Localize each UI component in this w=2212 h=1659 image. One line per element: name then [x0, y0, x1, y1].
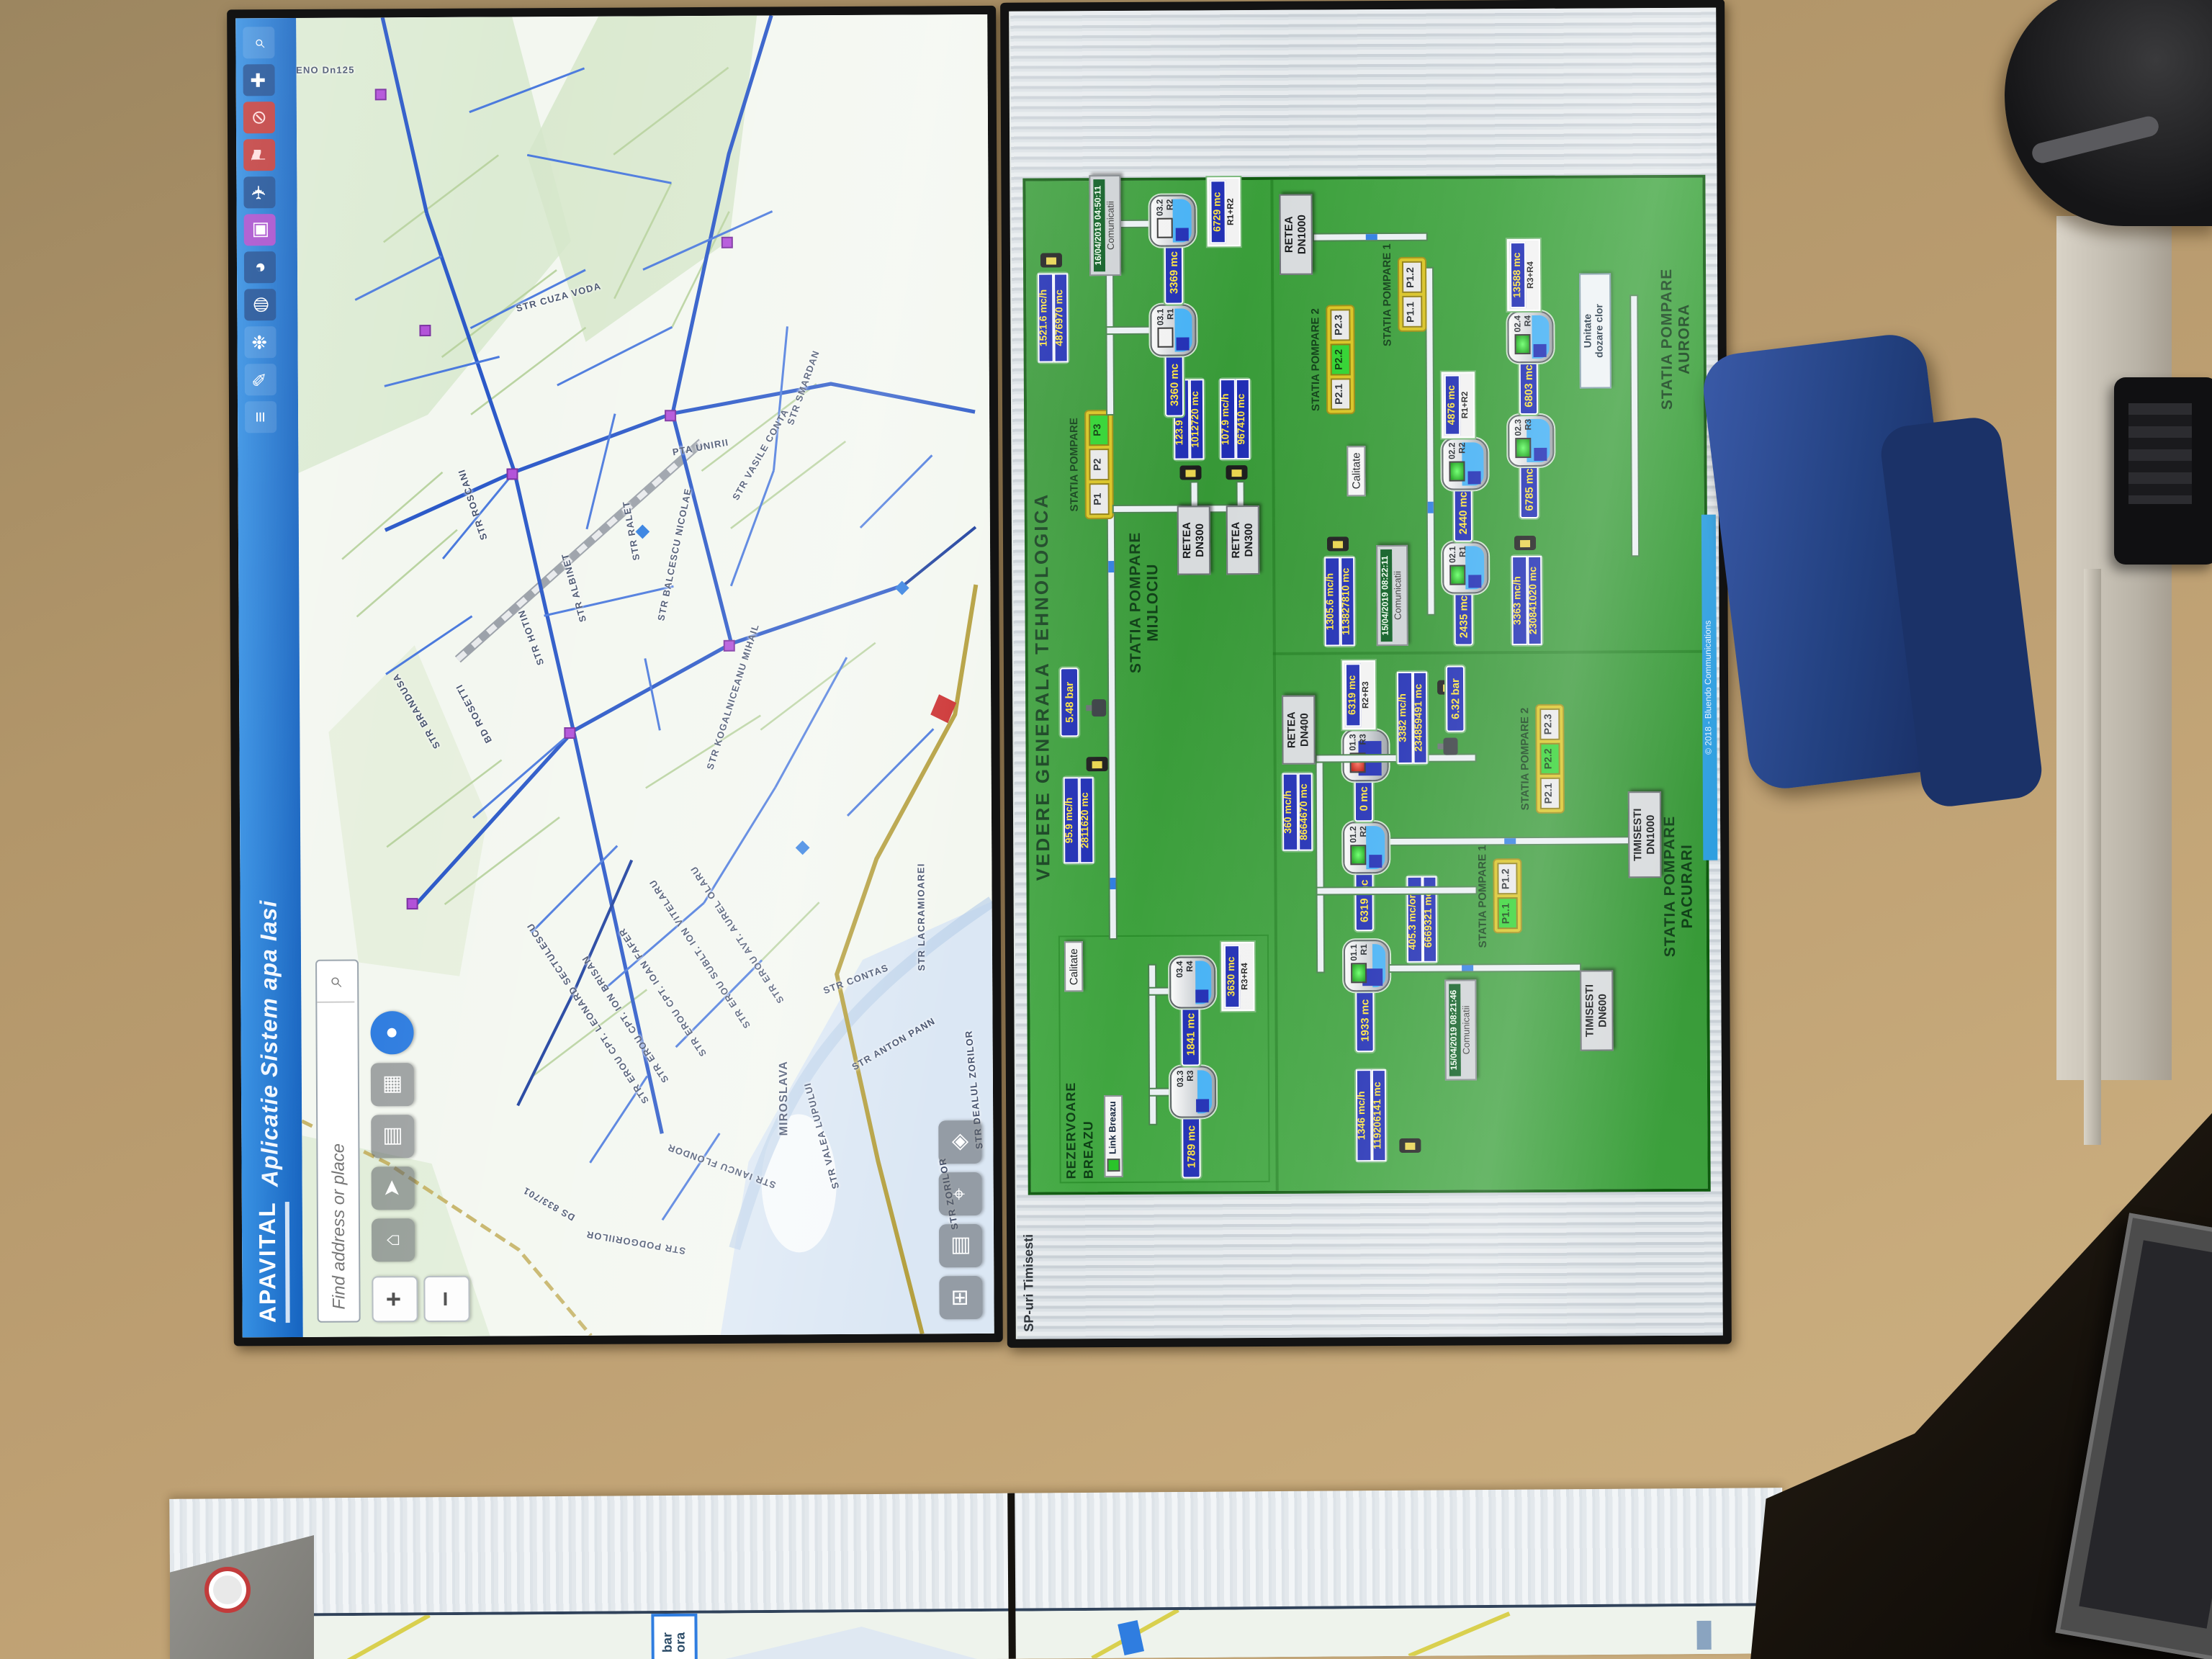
flowmeter-mijlociu-out: 1521.6 mc/h 4876970 mc — [1037, 273, 1068, 362]
no-entry-icon[interactable]: ⊘ — [243, 102, 275, 133]
palette-icon[interactable]: ❉ — [244, 326, 276, 358]
desk-monitor-seam — [1007, 1493, 1016, 1659]
pump-p1-2[interactable]: P1.2 — [1496, 863, 1516, 895]
retea-dn300-1: RETEA DN300 — [1177, 505, 1210, 575]
aurora-sp1-pumps: STATIA POMPARE 1 P1.1 P1.2 — [1380, 243, 1425, 346]
tank-03-4[interactable]: 03.4R4 — [1169, 956, 1215, 1008]
bookmark-button[interactable]: ◈ — [938, 1120, 981, 1164]
overview-button[interactable]: ⊞ — [939, 1276, 982, 1319]
mijlociu-label: STATIA POMPARE MIJLOCIU — [1128, 509, 1161, 696]
map-app-title: Aplicatie Sistem apa Iasi — [258, 900, 285, 1187]
aurora-label: STATIA POMPARE AURORA — [1659, 210, 1694, 469]
timisesti-dn1000: TIMISESTI DN1000 — [1627, 791, 1661, 878]
tank-value: 2440 mc — [1453, 484, 1472, 541]
pump-p2[interactable]: P2 — [1088, 449, 1108, 480]
tank-value: 1933 mc — [1354, 989, 1373, 1052]
scada-footer: © 2018 - Bluendo Communications — [1701, 515, 1717, 860]
tank-03-3[interactable]: 03.3R3 — [1169, 1066, 1215, 1118]
ceiling-camera — [2005, 0, 2212, 226]
pump-p2-2[interactable]: P2.2 — [1330, 343, 1350, 375]
tank-01-2[interactable]: 01.2R2 — [1342, 822, 1388, 873]
tank-02-1[interactable]: 02.1R1 — [1442, 541, 1488, 593]
measure-button[interactable]: ⌖ — [939, 1172, 982, 1215]
tank-02-3[interactable]: 02.3R3 — [1507, 415, 1553, 467]
tank-value: 6803 mc — [1519, 357, 1537, 415]
zoom-out-button[interactable]: − — [423, 1276, 469, 1322]
globe-icon[interactable]: ◍ — [244, 289, 276, 320]
map-label: MIROSLAVA — [777, 1061, 791, 1136]
mijlociu-pumps: STATIA POMPARE P1 P2 P3 — [1066, 411, 1112, 518]
section-divider — [1269, 180, 1277, 1191]
map-screen: APAVITAL Aplicatie Sistem apa Iasi ≡ ✎ ❉… — [235, 14, 994, 1337]
scada-screen: SP-uri Timisesti VEDERE GENERALA TEHNOLO… — [1009, 8, 1723, 1339]
flowmeter-breazu-mijlociu: 95.9 mc/h 2811620 mc — [1063, 777, 1094, 863]
timestamp-aurora: 15/04/2019 08:22:11 Comunicatii — [1375, 545, 1408, 646]
pacurari-sp2-pumps: STATIA POMPARE 2 P2.1 P2.2 P2.3 — [1517, 706, 1563, 812]
add-cross-icon[interactable]: ✚ — [243, 64, 275, 96]
wall-phone — [2114, 377, 2212, 565]
tank-value: 6785 mc — [1519, 461, 1537, 518]
monitor-map: APAVITAL Aplicatie Sistem apa Iasi ≡ ✎ ❉… — [227, 6, 1003, 1346]
calitate-button-aurora[interactable]: Calitate — [1346, 445, 1364, 496]
magnifier-icon[interactable]: ⌕ — [243, 27, 274, 58]
tank-value: 1841 mc — [1180, 1002, 1199, 1066]
flowmeter-dn400: 360 mc/h 8664670 mc — [1282, 773, 1313, 851]
total-aurora-12: 4876 mc R1+R2 — [1441, 372, 1474, 438]
wall-frame — [2056, 216, 2172, 1080]
pressure-value: 5.48 bar — [1059, 667, 1079, 737]
search-box: ⌕ — [315, 960, 361, 1323]
pump-p2-3[interactable]: P2.3 — [1539, 709, 1559, 740]
menu-sliders-icon[interactable]: ≡ — [245, 401, 276, 433]
pump-p3[interactable]: P3 — [1088, 414, 1108, 446]
flowmeter-pacurari-sp2: 3382 mc/h 234859491 mc — [1396, 672, 1427, 764]
scada-diagram-panel: VEDERE GENERALA TEHNOLOGICA REZERVOARE B… — [1022, 175, 1709, 1195]
retea-dn1000: RETEA DN1000 — [1278, 194, 1312, 275]
tank-02-4[interactable]: 02.4R4 — [1506, 311, 1552, 363]
legend-button[interactable]: ▤ — [939, 1224, 982, 1267]
tracking-button[interactable]: ● — [370, 1011, 413, 1054]
tank-value: 0 mc — [1354, 775, 1372, 822]
tank-value: 2435 mc — [1453, 588, 1472, 645]
compass-icon[interactable]: ◕ — [244, 251, 276, 283]
pump-p1[interactable]: P1 — [1089, 483, 1109, 515]
flag-icon[interactable]: ⚑ — [243, 139, 275, 171]
pump-p1-2[interactable]: P1.2 — [1401, 261, 1421, 293]
flowmeter-aurora-in: 1305.6 mc/h 113827810 mc — [1323, 557, 1354, 646]
layers-button[interactable]: ▤ — [371, 1115, 414, 1158]
map-titlebar: APAVITAL Aplicatie Sistem apa Iasi ≡ ✎ ❉… — [235, 18, 303, 1337]
desk-monitors: barora — [169, 1488, 1784, 1659]
flowmeter-dn300-2: 107.9 mc/h 967410 mc — [1219, 379, 1250, 459]
tank-03-1[interactable]: 03.1R1 — [1149, 304, 1195, 356]
pump-p1-1[interactable]: P1.1 — [1401, 296, 1421, 328]
flowmeter-aurora-mid: 3363 mc/h 230841020 mc — [1511, 556, 1542, 645]
map-label: STR LACRAMIOAREI — [917, 863, 927, 971]
chair-pole — [2084, 569, 2101, 1145]
scada-window-title: SP-uri Timisesti — [1020, 1234, 1035, 1332]
pump-p2-1[interactable]: P2.1 — [1539, 778, 1560, 809]
zoom-controls: + − — [372, 1276, 469, 1323]
pressure-pacurari: 6.32 bar — [1445, 665, 1464, 732]
map-widget-buttons: ⊞ ▤ ⌖ ◈ — [938, 1120, 982, 1319]
apavital-logo: APAVITAL — [256, 1201, 289, 1323]
control-room-photo: APAVITAL Aplicatie Sistem apa Iasi ≡ ✎ ❉… — [0, 0, 2212, 1659]
total-breazu: 3630 mc R3+R4 — [1220, 942, 1254, 1011]
tank-01-1[interactable]: 01.1R1 — [1343, 940, 1389, 992]
unitate-dozare-clor: Unitate dozare clor — [1578, 273, 1611, 388]
timisesti-dn600: TIMISESTI DN600 — [1579, 970, 1613, 1051]
tank-03-2[interactable]: 03.2R2 — [1148, 194, 1195, 246]
pump-p2-1[interactable]: P2.1 — [1330, 378, 1350, 410]
draw-pen-icon[interactable]: ✎ — [245, 364, 276, 395]
monitor-logo — [204, 1567, 251, 1613]
flowmeter-pacurari-sp1: 1346 mc/h 119206141 mc — [1355, 1069, 1386, 1161]
search-icon[interactable]: ⌕ — [317, 961, 354, 1003]
section-breazu: REZERVOARE BREAZU Calitate Link Breazu 1… — [1058, 935, 1269, 1184]
search-input[interactable] — [317, 1003, 359, 1321]
home-button[interactable]: ⌂ — [372, 1218, 415, 1262]
pump-p2-3[interactable]: P2.3 — [1329, 309, 1349, 341]
frame-icon[interactable]: ▣ — [244, 214, 276, 246]
calitate-button[interactable]: Calitate — [1064, 941, 1082, 992]
breazu-label: REZERVOARE BREAZU — [1063, 1049, 1097, 1179]
retea-dn300-2: RETEA DN300 — [1226, 505, 1259, 575]
pump-p2-2[interactable]: P2.2 — [1539, 743, 1559, 775]
timestamp-mijlociu: 16/04/2019 04:50:11 Comunicatii — [1088, 175, 1120, 276]
locate-button[interactable]: ➤ — [372, 1166, 415, 1210]
checkbox-icon — [1106, 1159, 1119, 1172]
total-aurora-34: 13588 mc R3+R4 — [1506, 239, 1540, 311]
tank-value: 1789 mc — [1181, 1115, 1200, 1178]
tank-value: 3360 mc — [1164, 354, 1183, 417]
basemap-button[interactable]: ▦ — [371, 1063, 414, 1106]
tank-value: 6319 mc — [1354, 871, 1372, 931]
desk-popup: barora — [651, 1614, 698, 1659]
zoom-in-button[interactable]: + — [372, 1276, 418, 1322]
link-breazu-checkbox[interactable]: Link Breazu — [1103, 1095, 1123, 1177]
tank-02-2[interactable]: 02.2R2 — [1441, 438, 1487, 490]
timestamp-pacurari-in: 15/04/2019 08:21:46 Comunicatii — [1444, 979, 1476, 1080]
pacurari-label: STATIA POMPARE PACURARI — [1662, 757, 1696, 1016]
video-wall: APAVITAL Aplicatie Sistem apa Iasi ≡ ✎ ❉… — [227, 0, 1735, 1357]
retea-dn400: RETEA DN400 — [1281, 696, 1315, 765]
total-mijlociu: 6729 mc R1+R2 — [1206, 177, 1240, 246]
map-toolbar: ≡ ✎ ❉ ◍ ◕ ▣ ✈ ⚑ ⊘ ✚ ⌕ — [243, 27, 276, 433]
aurora-sp2-pumps: STATIA POMPARE 2 P2.1 P2.2 P2.3 — [1308, 306, 1353, 413]
section-divider — [1272, 650, 1704, 655]
monitor-scada: SP-uri Timisesti VEDERE GENERALA TEHNOLO… — [1000, 0, 1732, 1348]
map-app: APAVITAL Aplicatie Sistem apa Iasi ≡ ✎ ❉… — [235, 14, 994, 1337]
tank-value: 3369 mc — [1164, 241, 1182, 305]
pump-p1-1[interactable]: P1.1 — [1497, 898, 1517, 930]
map-label: RENO Dn125 — [296, 66, 355, 76]
plane-icon[interactable]: ✈ — [243, 176, 275, 208]
scada-app: SP-uri Timisesti VEDERE GENERALA TEHNOLO… — [1010, 8, 1722, 1339]
pacurari-sp1-pumps: STATIA POMPARE 1 P1.1 P1.2 — [1475, 845, 1520, 948]
map-nav-buttons: ⌂ ➤ ▤ ▦ ● — [370, 1011, 415, 1262]
total-pacurari: 6319 mc R2+R3 — [1341, 660, 1375, 729]
